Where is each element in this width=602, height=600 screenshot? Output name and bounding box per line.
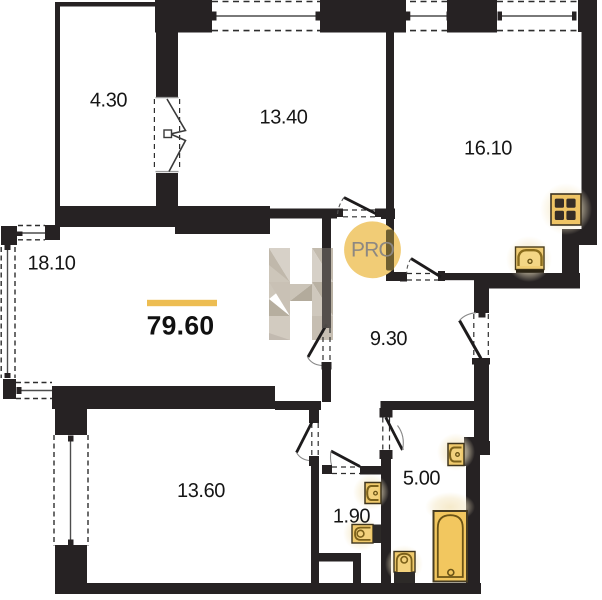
svg-text:4.30: 4.30 [90,90,128,112]
svg-text:79.60: 79.60 [147,311,215,341]
svg-text:13.60: 13.60 [177,480,225,502]
svg-text:13.40: 13.40 [259,107,307,129]
svg-text:9.30: 9.30 [370,328,408,350]
svg-text:5.00: 5.00 [403,468,441,490]
svg-text:PRO: PRO [351,239,395,262]
svg-text:18.10: 18.10 [27,253,75,275]
svg-text:1.90: 1.90 [333,506,371,528]
svg-text:16.10: 16.10 [464,138,512,160]
